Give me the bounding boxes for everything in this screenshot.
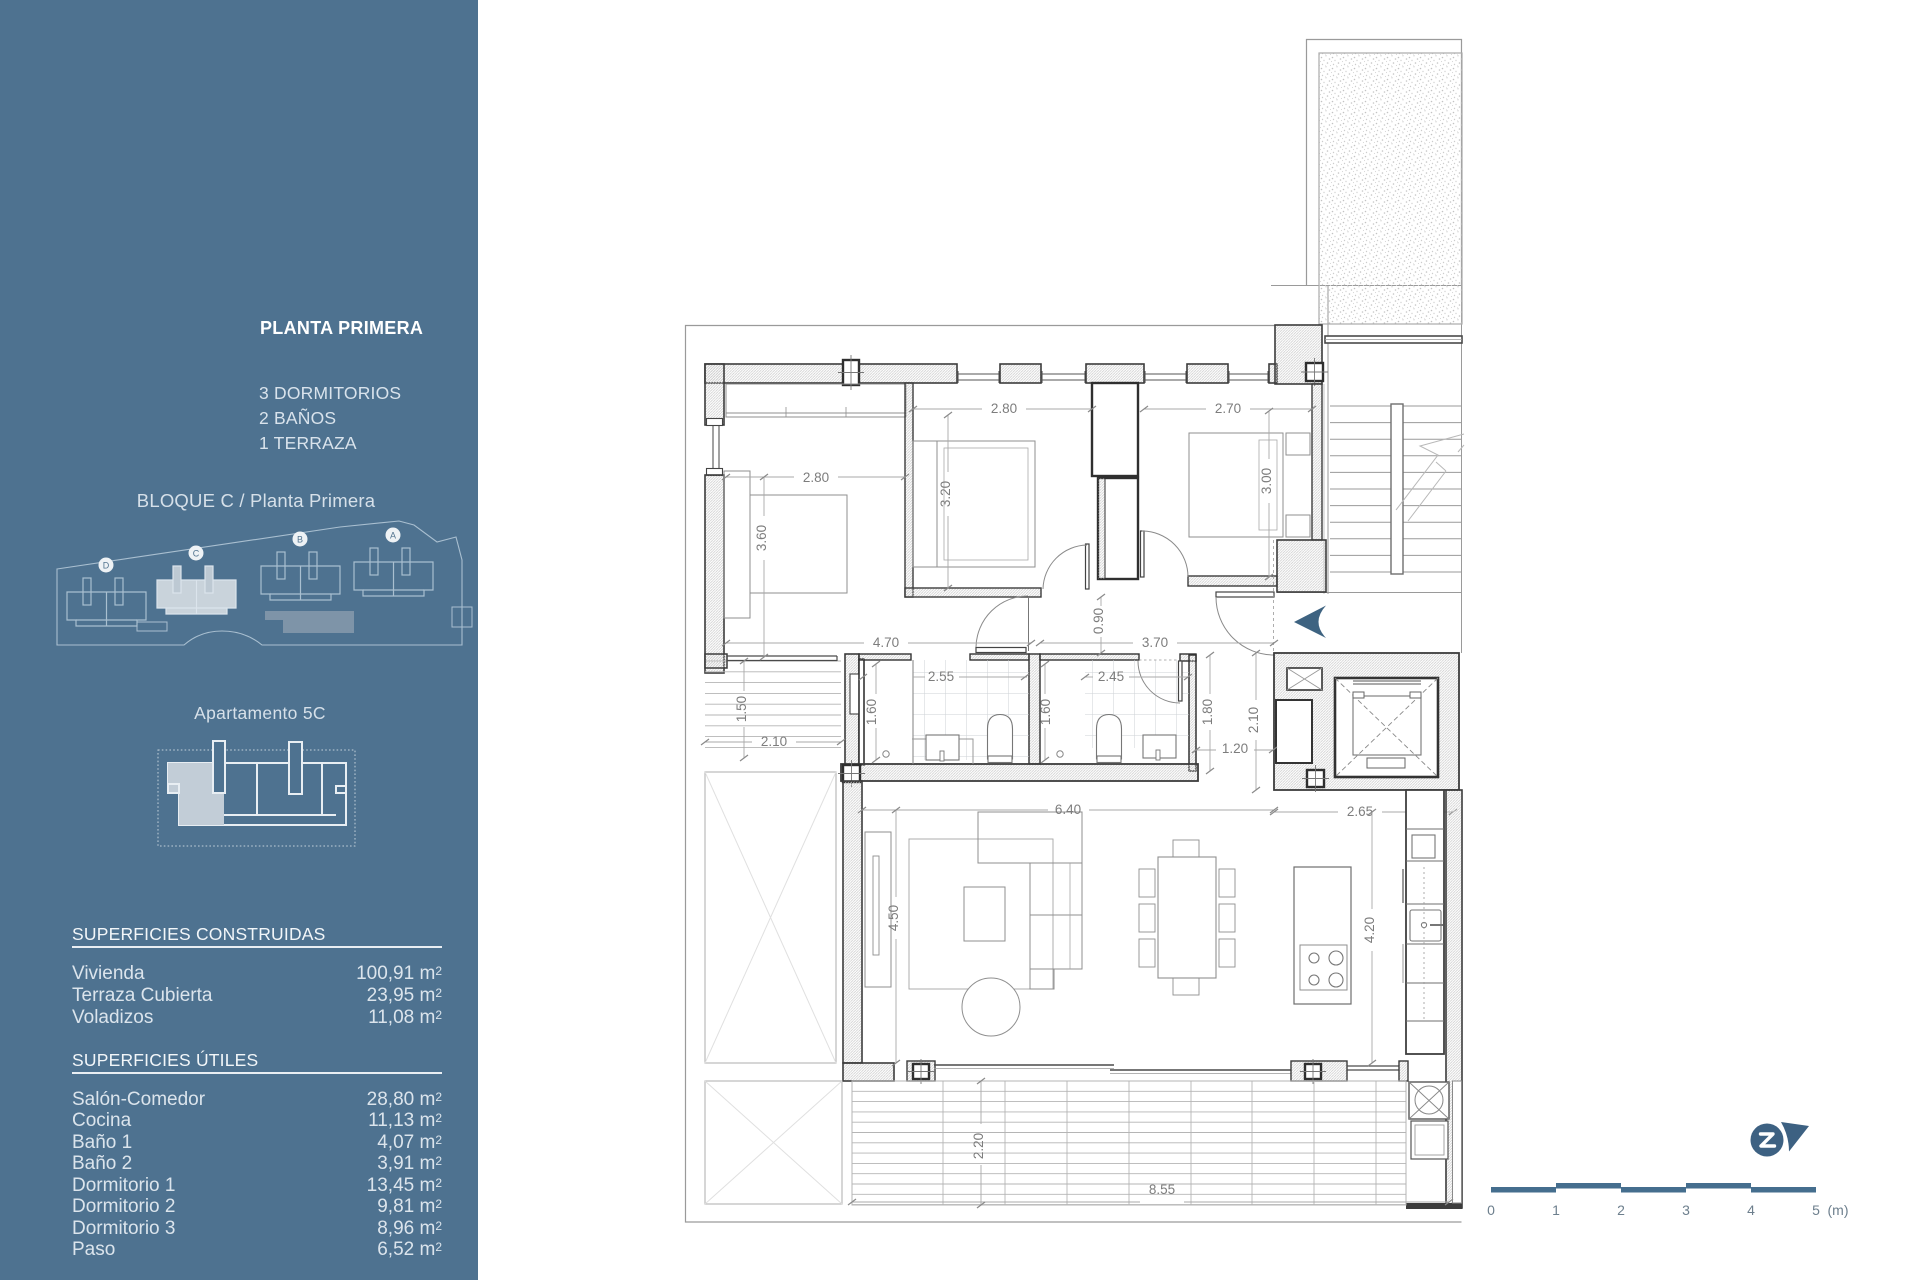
svg-text:4.20: 4.20: [1362, 917, 1377, 943]
svg-text:0: 0: [1487, 1202, 1495, 1218]
svg-text:4.70: 4.70: [873, 635, 899, 650]
svg-text:2.45: 2.45: [1098, 669, 1124, 684]
svg-text:3.70: 3.70: [1142, 635, 1168, 650]
svg-text:1.80: 1.80: [1200, 699, 1215, 725]
svg-text:(m): (m): [1828, 1202, 1849, 1218]
svg-text:2.80: 2.80: [803, 470, 829, 485]
svg-text:2: 2: [1617, 1202, 1625, 1218]
svg-text:8.55: 8.55: [1149, 1182, 1175, 1197]
svg-text:1.50: 1.50: [734, 696, 749, 722]
svg-text:3.60: 3.60: [754, 525, 769, 551]
svg-text:2.20: 2.20: [971, 1133, 986, 1159]
svg-text:2.70: 2.70: [1215, 401, 1241, 416]
svg-text:6.40: 6.40: [1055, 802, 1081, 817]
svg-text:3.20: 3.20: [938, 481, 953, 507]
svg-text:5: 5: [1812, 1202, 1820, 1218]
svg-text:2.10: 2.10: [761, 734, 787, 749]
svg-text:1.20: 1.20: [1222, 741, 1248, 756]
svg-text:1.60: 1.60: [864, 699, 879, 725]
svg-text:3.00: 3.00: [1259, 468, 1274, 494]
svg-text:1.60: 1.60: [1038, 699, 1053, 725]
svg-text:0.90: 0.90: [1091, 608, 1106, 634]
svg-text:2.65: 2.65: [1347, 804, 1373, 819]
svg-text:1: 1: [1552, 1202, 1560, 1218]
svg-text:2.10: 2.10: [1246, 707, 1261, 733]
svg-text:3: 3: [1682, 1202, 1690, 1218]
svg-text:4: 4: [1747, 1202, 1755, 1218]
svg-text:2.80: 2.80: [991, 401, 1017, 416]
svg-text:4.50: 4.50: [886, 905, 901, 931]
svg-text:2.55: 2.55: [928, 669, 954, 684]
